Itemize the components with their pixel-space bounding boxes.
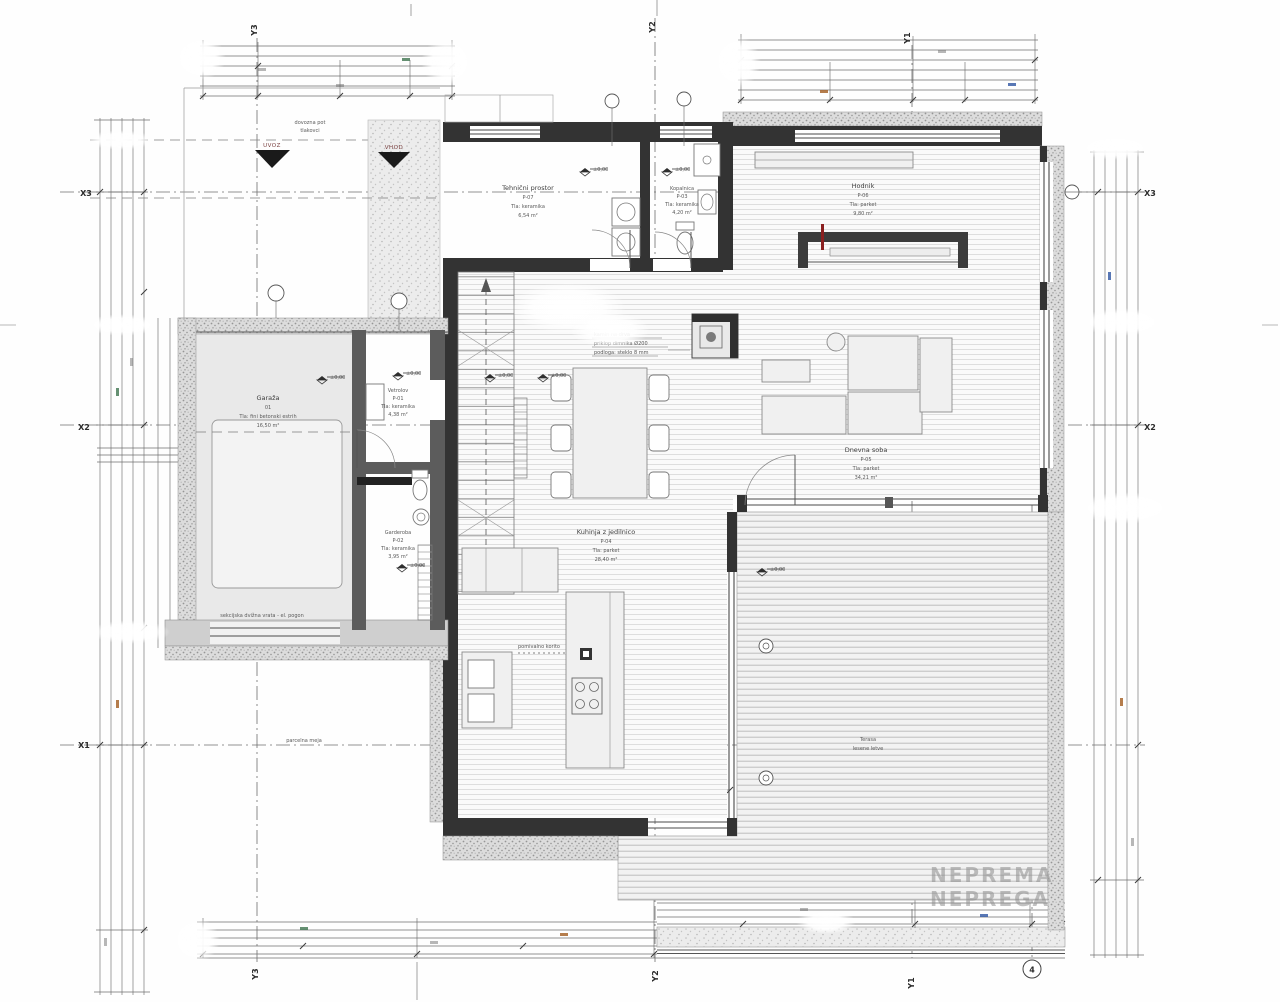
utility-fixtures [592,198,640,268]
svg-text:P-05: P-05 [860,457,871,463]
entry-room-fixtures [357,384,432,620]
svg-text:28,40 m²: 28,40 m² [595,557,618,563]
corner-sofa-b [848,392,922,434]
coffee-table-small [762,360,810,382]
dimension-chain-top-left [200,40,455,100]
grid-label-top-y3: Y3 [250,24,259,36]
grid-label-bottom-y2: Y2 [651,970,660,982]
vetrolov-name: Vetrolov [388,388,409,394]
sliding-door [357,477,412,485]
fireplace [692,314,738,358]
svg-text:±0,00: ±0,00 [330,375,345,381]
svg-text:Tla: parket: Tla: parket [849,202,877,208]
svg-text:Tla: keramika: Tla: keramika [510,204,545,210]
living-name: Dnevna soba [845,446,888,454]
svg-text:±0,00: ±0,00 [770,567,785,573]
svg-text:Tla: keramika: Tla: keramika [380,404,415,410]
svg-text:±0,00: ±0,00 [675,167,690,173]
svg-text:tlakovci: tlakovci [300,128,319,134]
svg-text:P-01: P-01 [392,396,403,402]
vhod-label: VHOD [385,145,403,151]
watermark: NEPREMA NEPREGA [930,863,1054,911]
island-note: pomivalno korito [518,644,560,650]
terrace-name: Terasa [859,737,876,743]
svg-text:4,20 m²: 4,20 m² [672,210,692,216]
dimension-chain-top-right [738,34,1038,104]
svg-text:P-03: P-03 [676,194,687,200]
garderoba-name: Garderoba [385,530,411,536]
svg-text:Tla: keramika: Tla: keramika [664,202,699,208]
grid-label-top-y2: Y2 [648,21,657,33]
svg-text:lesene letve: lesene letve [853,746,883,752]
utility-name: Tehnični prostor [501,184,554,192]
hall-name: Hodnik [852,182,875,190]
svg-text:6,54 m²: 6,54 m² [518,213,538,219]
parquet-living [733,146,1040,497]
svg-text:Tla: fini betonski estrih: Tla: fini betonski estrih [238,414,296,420]
svg-text:P-02: P-02 [392,538,403,544]
svg-text:Tla: parket: Tla: parket [592,548,620,554]
svg-text:4,38 m²: 4,38 m² [388,412,408,418]
dining-set [551,368,669,498]
svg-text:Tla: parket: Tla: parket [852,466,880,472]
svg-text:P-06: P-06 [857,193,868,199]
driveway-arrow-icon [255,150,290,168]
entry-paving [368,120,440,322]
uvoz-label: UVOZ [263,143,281,149]
boundary-note: parcelna meja [286,738,322,744]
svg-text:P-07: P-07 [522,195,533,201]
svg-text:3,95 m²: 3,95 m² [388,554,408,560]
kitchen-name: Kuhinja z jedilnico [577,528,635,536]
svg-text:podloga: steklo 8 mm: podloga: steklo 8 mm [594,350,649,356]
grid-label-right-x2: X2 [1144,423,1156,432]
grid-label-bottom-y1: Y1 [907,977,916,990]
svg-text:P-04: P-04 [600,539,611,545]
svg-text:Tla: keramika: Tla: keramika [380,546,415,552]
side-table-round [827,333,845,351]
svg-text:±0,00: ±0,00 [410,563,425,569]
floor-plan-drawing: Y3 Y2 Y1 Y3 Y2 Y1 X3 X2 X1 X3 X2 4 Garaž… [0,0,1280,1002]
bath-name: Kopalnica [670,186,694,192]
dimension-chain-left [94,118,192,995]
watermark-line-1: NEPREMA [930,863,1054,887]
svg-text:01: 01 [265,405,271,411]
svg-text:±0,00: ±0,00 [551,373,566,379]
svg-text:34,21 m²: 34,21 m² [855,475,878,481]
grid-label-top-y1: Y1 [903,32,912,45]
garage-door-note: sekcijska dvižna vrata - el. pogon [220,612,304,619]
car-outline [212,420,342,588]
kitchen-island [566,592,624,768]
grid-label-left-x1: X1 [78,741,90,750]
dimension-chain-right [1090,150,1144,958]
axis-bubble-4-label: 4 [1029,966,1035,975]
grid-label-bottom-y3: Y3 [251,968,260,980]
corner-sofa-c [920,338,952,412]
coffee-table-large [762,396,846,434]
corner-sofa-a [848,336,918,390]
grid-label-right-x3: X3 [1144,189,1156,198]
stair-shelf [514,398,527,478]
svg-text:±0,00: ±0,00 [406,371,421,377]
grid-label-left-x2: X2 [78,423,90,432]
driveway-note: dovozna pot [295,120,326,126]
svg-text:±0,00: ±0,00 [498,373,513,379]
floor-plan-sheet: Y3 Y2 Y1 Y3 Y2 Y1 X3 X2 X1 X3 X2 4 Garaž… [0,0,1280,1002]
garage-name: Garaža [256,394,279,402]
svg-text:9,80 m²: 9,80 m² [853,211,873,217]
svg-text:16,50 m²: 16,50 m² [257,423,280,429]
watermark-line-2: NEPREGA [930,887,1050,911]
svg-text:±0,00: ±0,00 [593,167,608,173]
grid-label-left-x3: X3 [80,189,92,198]
